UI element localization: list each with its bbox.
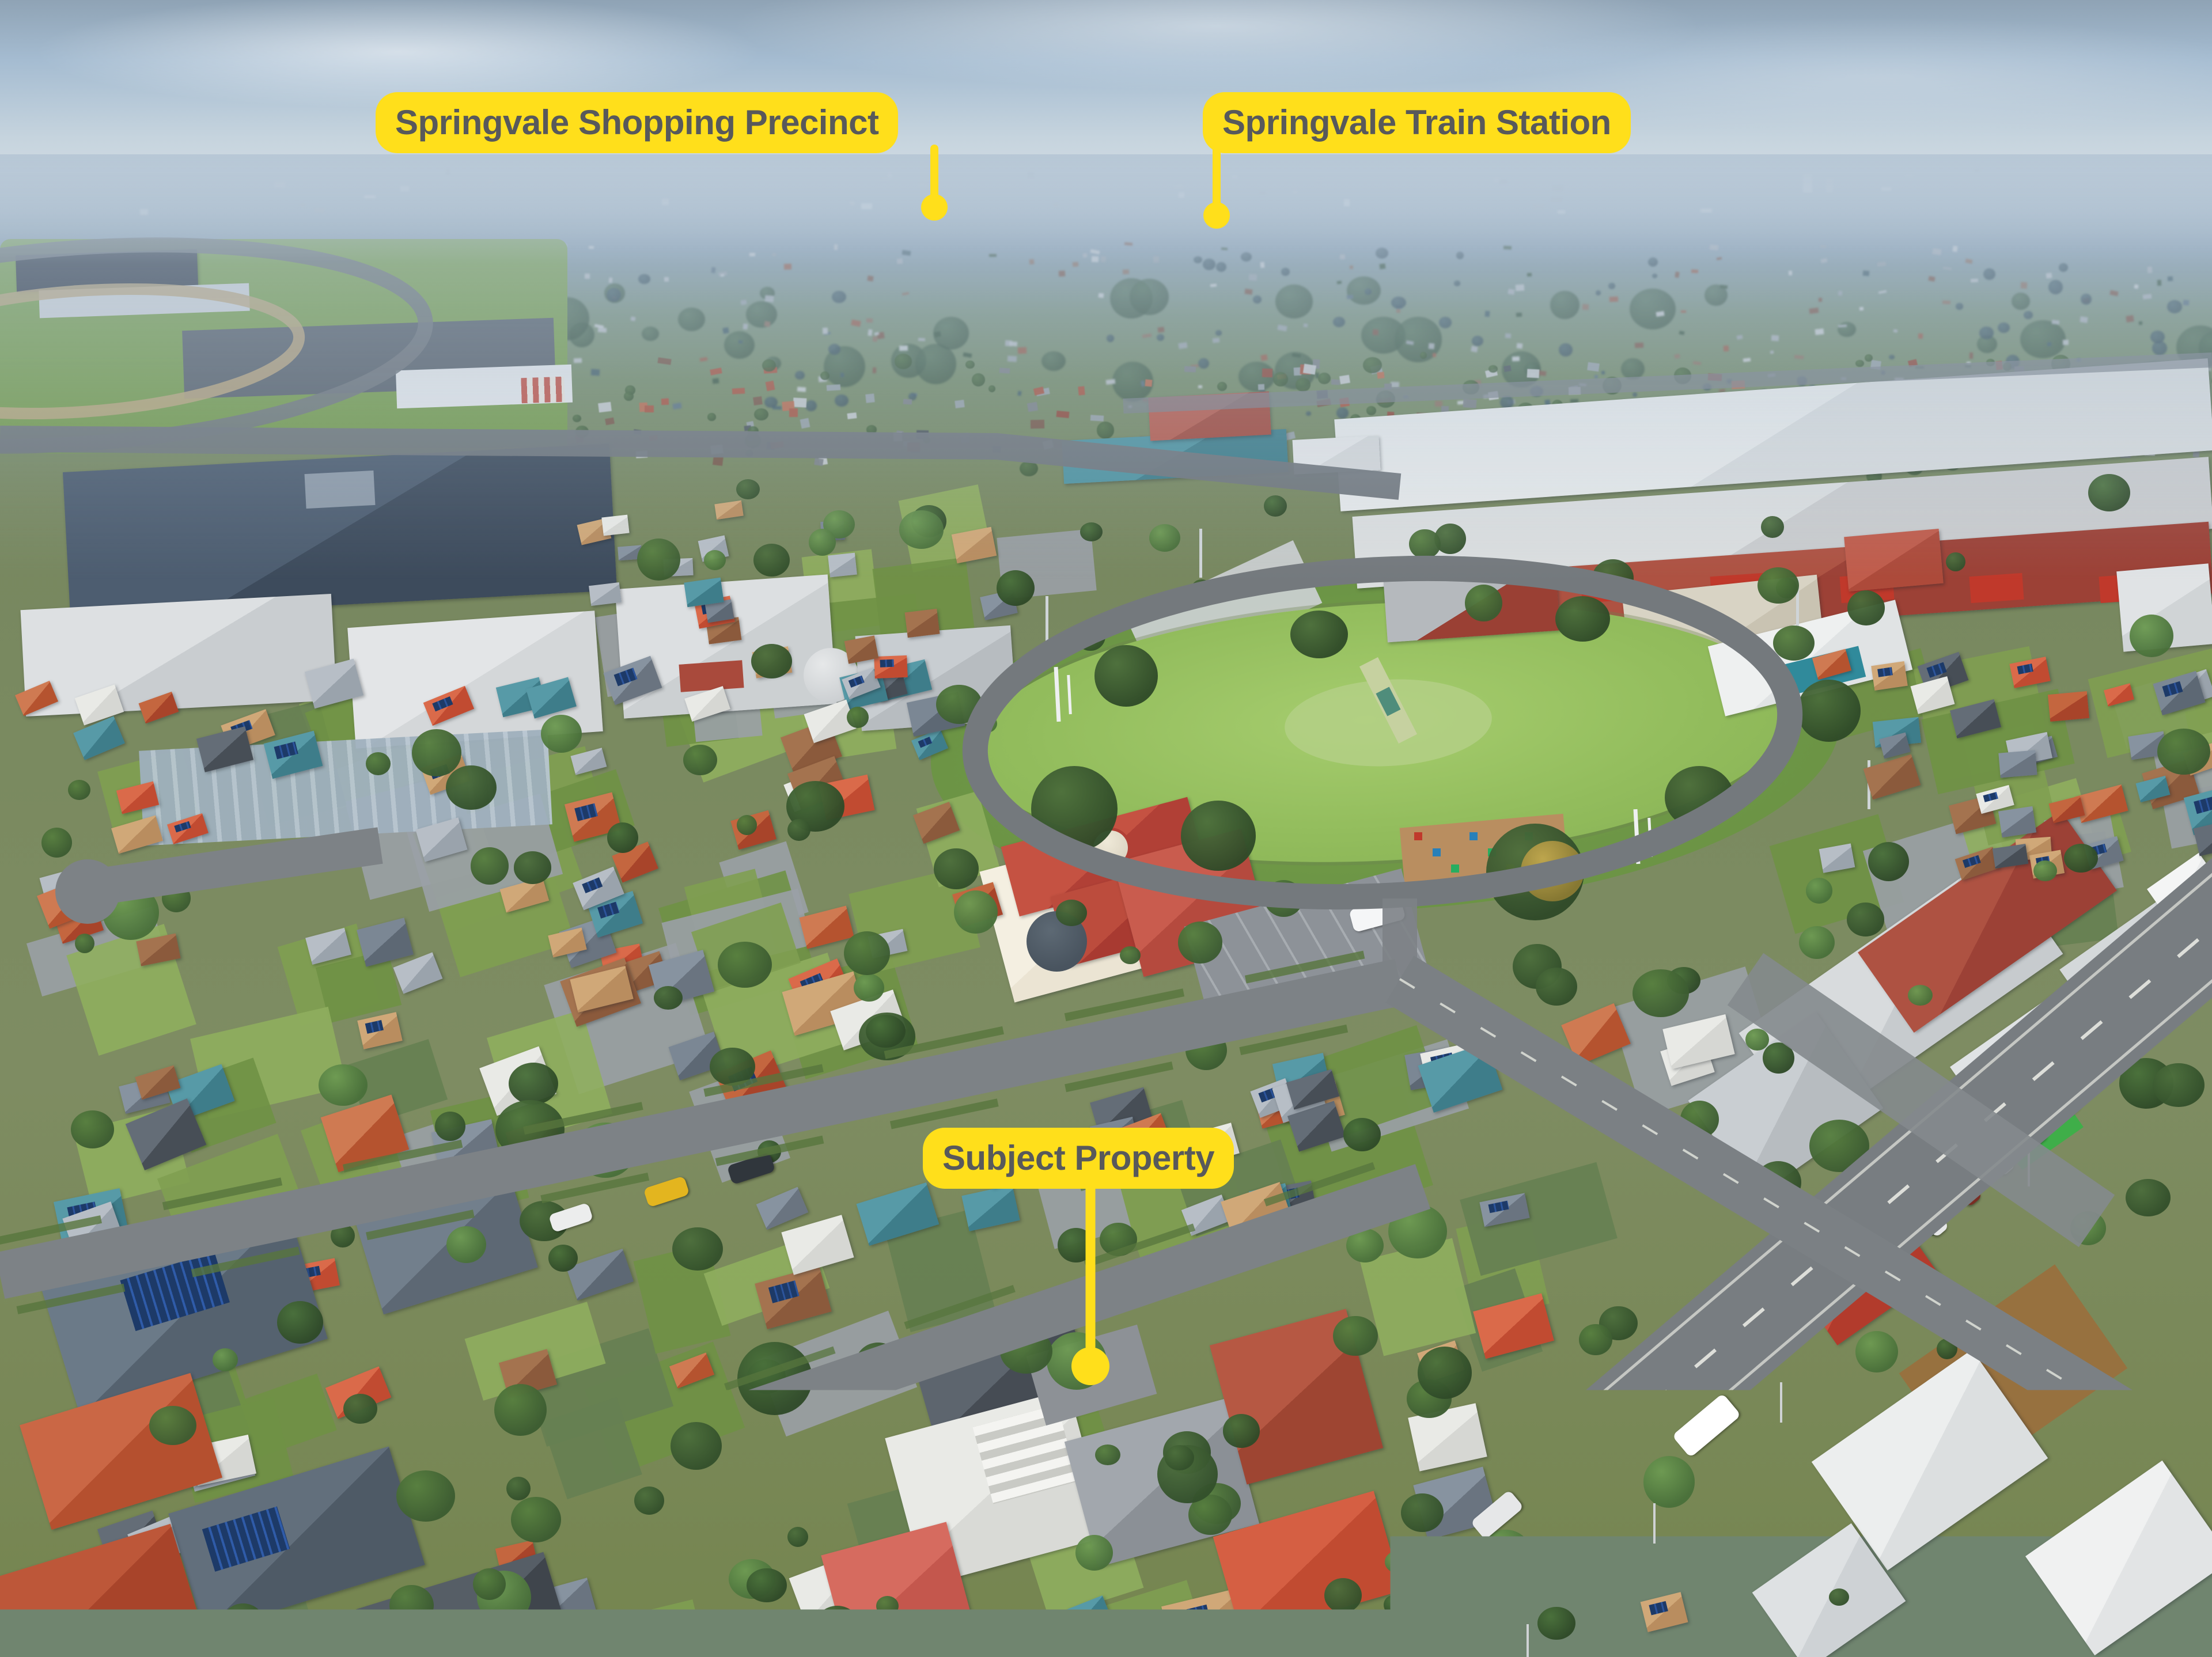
callout-subject-property: Subject Property (923, 1128, 1234, 1189)
location-marker-icon (1203, 202, 1230, 229)
callout-train-station: Springvale Train Station (1203, 92, 1631, 153)
location-marker-icon (921, 194, 948, 221)
callout-shopping-precinct: Springvale Shopping Precinct (376, 92, 898, 153)
location-marker-icon (1071, 1347, 1109, 1385)
callout-leader-lines (0, 0, 2212, 1657)
aerial-photograph: Springvale Shopping PrecinctSpringvale T… (0, 0, 2212, 1657)
